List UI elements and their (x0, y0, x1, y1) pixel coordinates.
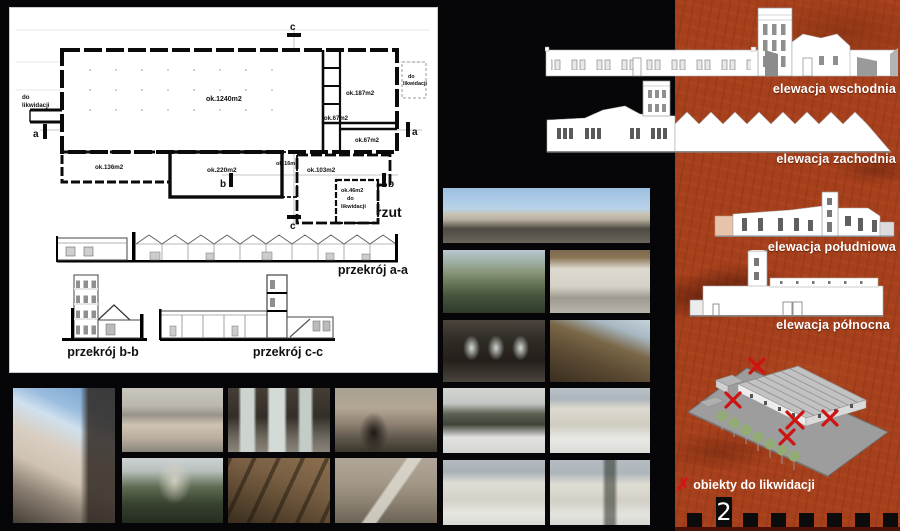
photo-dark-interior (443, 320, 545, 382)
footer-square (799, 513, 814, 528)
drawing-board: ok.1240m2 ok.187m2 ok.67m2 ok.67m2 ok.13… (10, 8, 437, 372)
east-shed-gray-left (765, 50, 778, 76)
demolition-legend: ✗ obiekty do likwidacji (676, 478, 815, 492)
demolition-left-line1: do (22, 94, 30, 101)
legend-label: obiekty do likwidacji (693, 478, 815, 492)
section-bb-drawing (62, 275, 147, 341)
demolition-small-line2: likwidacji (341, 204, 366, 210)
room46-outline (336, 180, 378, 223)
demolition-left-line2: likwidacji (22, 102, 50, 109)
demolition-right-line1: do (408, 74, 415, 80)
photo-snow-cottage (550, 388, 650, 453)
section-bb-label: przekrój b-b (67, 345, 139, 359)
photo-snow-conifers (443, 388, 545, 453)
south-tower (822, 192, 838, 236)
page-number: 2 (716, 497, 732, 527)
column-grid-dots (78, 68, 282, 124)
photo-collapsed-attic (550, 320, 650, 382)
west-sawtooth-roofline (675, 112, 891, 152)
marker-a-left: a (33, 129, 39, 140)
demolition-small-line1: do (347, 196, 354, 202)
left-demolition-corridor (30, 110, 62, 122)
elevation-west-label: elewacja zachodnia (738, 152, 896, 166)
photo-snow-yard (550, 460, 650, 525)
photo-weathered-facade (335, 388, 437, 452)
footer-square (687, 513, 702, 528)
footer-square (883, 513, 898, 528)
photo-snow-building (443, 460, 545, 525)
panel-bottom-edge (675, 527, 900, 531)
section-aa-label: przekrój a-a (338, 263, 409, 277)
footer-square (827, 513, 842, 528)
plan-title: rzut (376, 204, 402, 220)
photo-tower-top (122, 388, 223, 452)
marker-c-bottom: c (290, 221, 296, 232)
east-gabled-mass (792, 34, 850, 76)
floor-plan (30, 50, 426, 223)
legend-x-icon: ✗ (676, 478, 690, 492)
elevation-west-drawing (545, 80, 895, 158)
room-label-46: ok.46m2 (341, 188, 363, 194)
photo-ruins-trees (443, 250, 545, 313)
section-cc-drawing (159, 275, 335, 341)
marker-b-right: b (388, 179, 394, 190)
footer-square (771, 513, 786, 528)
elevation-south-drawing (690, 190, 895, 240)
elevation-north-drawing (688, 250, 888, 318)
page-indicator: 2 (716, 497, 732, 528)
footer-square (743, 513, 758, 528)
photo-roof-trusses (228, 458, 330, 523)
photo-tower-from-below (13, 388, 115, 523)
room-label-103: ok.103m2 (307, 167, 336, 174)
presentation-board: ok.1240m2 ok.187m2 ok.67m2 ok.67m2 ok.13… (0, 0, 900, 531)
room-label-67b: ok.67m2 (355, 138, 380, 144)
marker-c-top: c (290, 22, 296, 33)
room-label-220: ok.220m2 (207, 167, 237, 174)
elevation-north-label: elewacja północna (730, 318, 890, 332)
room-label-67a: ok.67m2 (324, 116, 349, 122)
room-label-187: ok.187m2 (346, 90, 375, 97)
south-peach-block (715, 216, 733, 236)
room-label-136: ok.136m2 (95, 164, 124, 171)
right-demolition-outline (402, 62, 426, 98)
west-tower (643, 81, 670, 116)
room-label-16: ok.16m2 (276, 161, 298, 167)
photo-tower-trees (122, 458, 223, 523)
room-label-main: ok.1240m2 (206, 96, 242, 103)
demolition-right-line2: likwidacji (403, 81, 427, 87)
photo-arched-windows (228, 388, 330, 452)
section-aa-drawing (56, 232, 398, 263)
marker-b-left: b (220, 179, 226, 190)
marker-a-right: a (412, 127, 418, 138)
photo-wall-stair (335, 458, 437, 523)
plan-and-sections-drawing: ok.1240m2 ok.187m2 ok.67m2 ok.67m2 ok.13… (10, 8, 437, 372)
photo-warehouse-inside (550, 250, 650, 313)
section-cc-label: przekrój c-c (253, 345, 323, 359)
footer-square (855, 513, 870, 528)
photo-factory-street (443, 188, 650, 243)
axonometric-site-diagram (680, 352, 895, 480)
